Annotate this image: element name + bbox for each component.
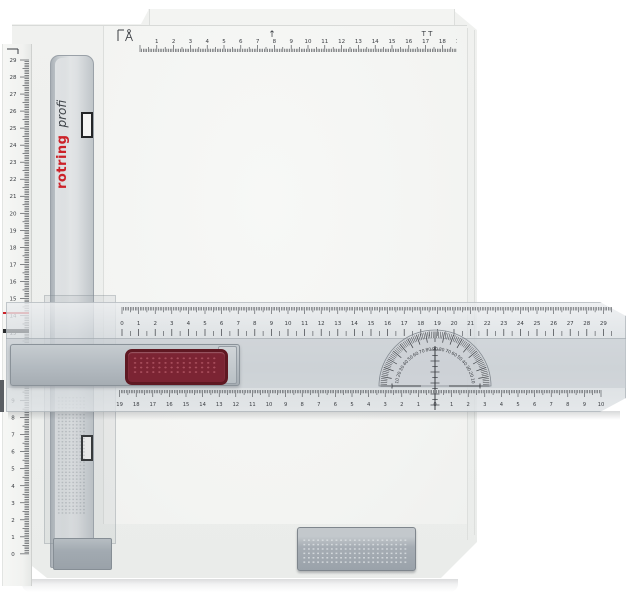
svg-text:7: 7 <box>550 402 553 408</box>
svg-text:9: 9 <box>289 39 293 45</box>
svg-text:26: 26 <box>550 321 557 327</box>
svg-text:12: 12 <box>232 402 239 408</box>
svg-text:16: 16 <box>166 402 173 408</box>
svg-text:15: 15 <box>10 296 17 302</box>
svg-text:18: 18 <box>439 39 446 45</box>
svg-text:10: 10 <box>305 39 312 45</box>
svg-text:9: 9 <box>583 402 586 408</box>
svg-text:7: 7 <box>236 321 240 327</box>
svg-text:17: 17 <box>149 402 156 408</box>
svg-text:6: 6 <box>220 321 224 327</box>
grip-dot-texture <box>131 355 216 373</box>
svg-text:28: 28 <box>583 321 590 327</box>
svg-text:15: 15 <box>389 39 396 45</box>
svg-text:7: 7 <box>317 402 320 408</box>
svg-text:18: 18 <box>10 245 17 251</box>
svg-text:14: 14 <box>351 321 358 327</box>
svg-text:5: 5 <box>222 39 226 45</box>
brand-model: profi <box>55 100 69 128</box>
rail-end-block <box>53 538 112 570</box>
svg-text:19: 19 <box>10 228 17 234</box>
svg-text:15: 15 <box>368 321 375 327</box>
drawing-surface-panel <box>103 26 468 524</box>
svg-text:0: 0 <box>11 552 15 558</box>
svg-text:8: 8 <box>566 402 569 408</box>
pad-dot-texture <box>302 538 409 565</box>
svg-text:24: 24 <box>10 143 17 149</box>
svg-text:3: 3 <box>11 501 15 507</box>
svg-text:23: 23 <box>10 160 17 166</box>
top-printed-ruler: 12345678910111213141516171819↑T T <box>112 27 457 55</box>
svg-text:11: 11 <box>321 39 328 45</box>
svg-text:13: 13 <box>334 321 341 327</box>
svg-text:13: 13 <box>355 39 362 45</box>
svg-text:19: 19 <box>456 39 457 45</box>
board-right-outer-line <box>474 30 475 535</box>
rail-clip-upper <box>81 112 93 138</box>
svg-text:6: 6 <box>334 402 337 408</box>
svg-text:5: 5 <box>203 321 207 327</box>
straightedge-top-scale: 0123456789101112131415161718192021222324… <box>100 305 612 339</box>
svg-text:11: 11 <box>301 321 308 327</box>
svg-text:3: 3 <box>189 39 193 45</box>
svg-text:10: 10 <box>266 402 273 408</box>
svg-text:29: 29 <box>10 58 17 64</box>
svg-text:4: 4 <box>187 321 191 327</box>
brand-name: rotring <box>55 135 70 189</box>
svg-text:24: 24 <box>517 321 524 327</box>
svg-text:22: 22 <box>10 177 17 183</box>
brand-logo: rotringprofi <box>51 57 73 189</box>
svg-text:17: 17 <box>422 39 429 45</box>
svg-text:10: 10 <box>285 321 292 327</box>
crosshair-icon <box>388 344 484 414</box>
svg-text:10: 10 <box>598 402 605 408</box>
svg-text:5: 5 <box>11 467 15 473</box>
svg-text:6: 6 <box>11 450 15 456</box>
board-drop-shadow <box>22 579 458 592</box>
svg-text:2: 2 <box>153 321 157 327</box>
svg-text:5: 5 <box>516 402 519 408</box>
svg-text:9: 9 <box>270 321 274 327</box>
svg-text:3: 3 <box>170 321 174 327</box>
svg-text:23: 23 <box>500 321 507 327</box>
svg-text:1: 1 <box>137 321 141 327</box>
svg-text:27: 27 <box>567 321 574 327</box>
svg-text:7: 7 <box>256 39 260 45</box>
svg-text:29: 29 <box>600 321 607 327</box>
svg-text:16: 16 <box>405 39 412 45</box>
svg-text:7: 7 <box>11 433 15 439</box>
svg-text:1: 1 <box>155 39 159 45</box>
svg-text:0: 0 <box>120 321 124 327</box>
svg-text:1: 1 <box>11 535 15 541</box>
svg-text:20: 20 <box>10 211 17 217</box>
svg-text:6: 6 <box>533 402 536 408</box>
svg-text:18: 18 <box>133 402 140 408</box>
svg-text:28: 28 <box>10 75 17 81</box>
svg-text:4: 4 <box>367 402 371 408</box>
svg-text:11: 11 <box>249 402 256 408</box>
board-right-edge-line <box>467 28 468 540</box>
straightedge-shadow <box>8 411 620 420</box>
svg-text:2: 2 <box>172 39 176 45</box>
svg-text:12: 12 <box>338 39 345 45</box>
svg-text:2: 2 <box>11 518 15 524</box>
svg-text:27: 27 <box>10 92 17 98</box>
svg-text:4: 4 <box>205 39 209 45</box>
drawing-board-photo: 2928272625242322212019181716151413121110… <box>0 0 629 603</box>
straightedge-left-clamp <box>0 380 4 412</box>
svg-text:9: 9 <box>284 402 287 408</box>
svg-text:8: 8 <box>253 321 257 327</box>
svg-text:25: 25 <box>10 126 17 132</box>
svg-text:5: 5 <box>350 402 353 408</box>
svg-text:19: 19 <box>116 402 123 408</box>
board-top-edge-strip <box>149 9 455 26</box>
svg-text:17: 17 <box>10 262 17 268</box>
svg-text:14: 14 <box>372 39 379 45</box>
svg-text:6: 6 <box>239 39 243 45</box>
svg-text:↑: ↑ <box>268 30 276 40</box>
svg-text:21: 21 <box>10 194 17 200</box>
svg-text:26: 26 <box>10 109 17 115</box>
svg-text:14: 14 <box>199 402 206 408</box>
svg-text:3: 3 <box>384 402 387 408</box>
svg-text:4: 4 <box>11 484 15 490</box>
svg-text:T T: T T <box>421 30 434 38</box>
svg-text:13: 13 <box>216 402 223 408</box>
svg-text:12: 12 <box>318 321 325 327</box>
svg-text:8: 8 <box>301 402 304 408</box>
straightedge-bottom-scale: 1918171615141312111098765432101234567891… <box>100 388 612 412</box>
svg-text:4: 4 <box>500 402 504 408</box>
svg-text:25: 25 <box>534 321 541 327</box>
svg-text:15: 15 <box>183 402 190 408</box>
svg-text:16: 16 <box>10 279 17 285</box>
